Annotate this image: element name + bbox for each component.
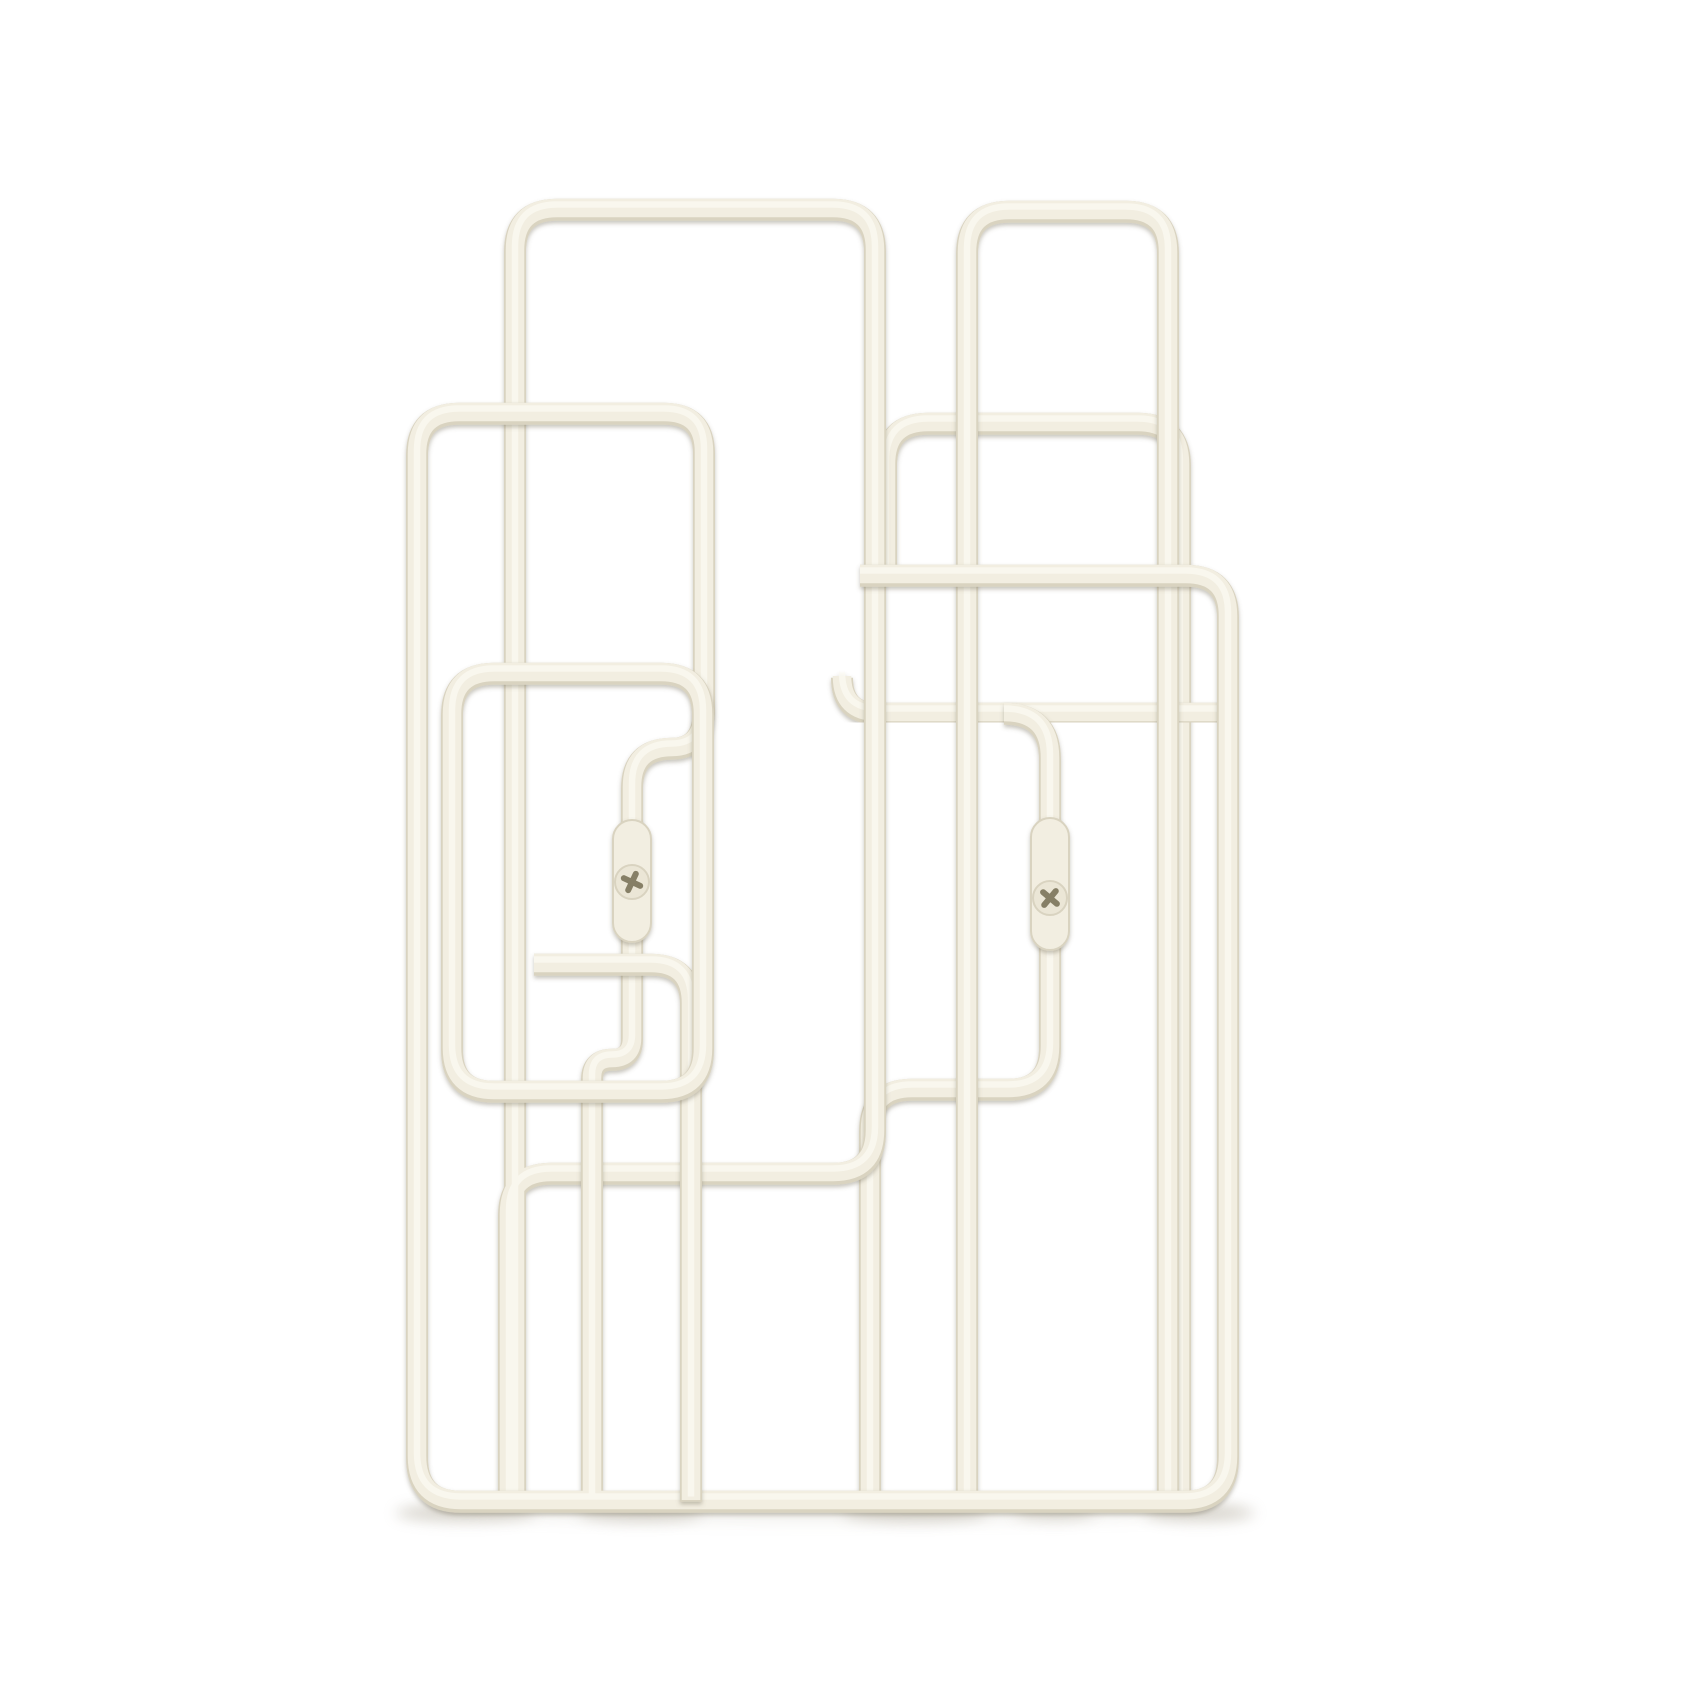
left-pocket-rail-highlight [534, 960, 691, 1497]
mount-layer [613, 818, 1069, 950]
left-pocket-frame-tube [452, 672, 703, 1090]
product-photo [0, 0, 1701, 1702]
left-pocket-frame-highlight [452, 669, 703, 1087]
wire-layer [417, 205, 1228, 1502]
left-pocket-rail-wire [534, 960, 691, 1502]
magazine-rack-illustration [0, 0, 1701, 1702]
left-pocket-rail-tube [534, 963, 691, 1500]
mount-plate-left [613, 820, 651, 942]
left-pocket-frame-shade [452, 674, 703, 1092]
left-pocket-frame-wire [452, 669, 703, 1092]
mount-plate-right [1031, 818, 1069, 950]
outer-frame-loop-highlight [417, 409, 1228, 1497]
left-pocket-rail-shade [534, 965, 691, 1502]
